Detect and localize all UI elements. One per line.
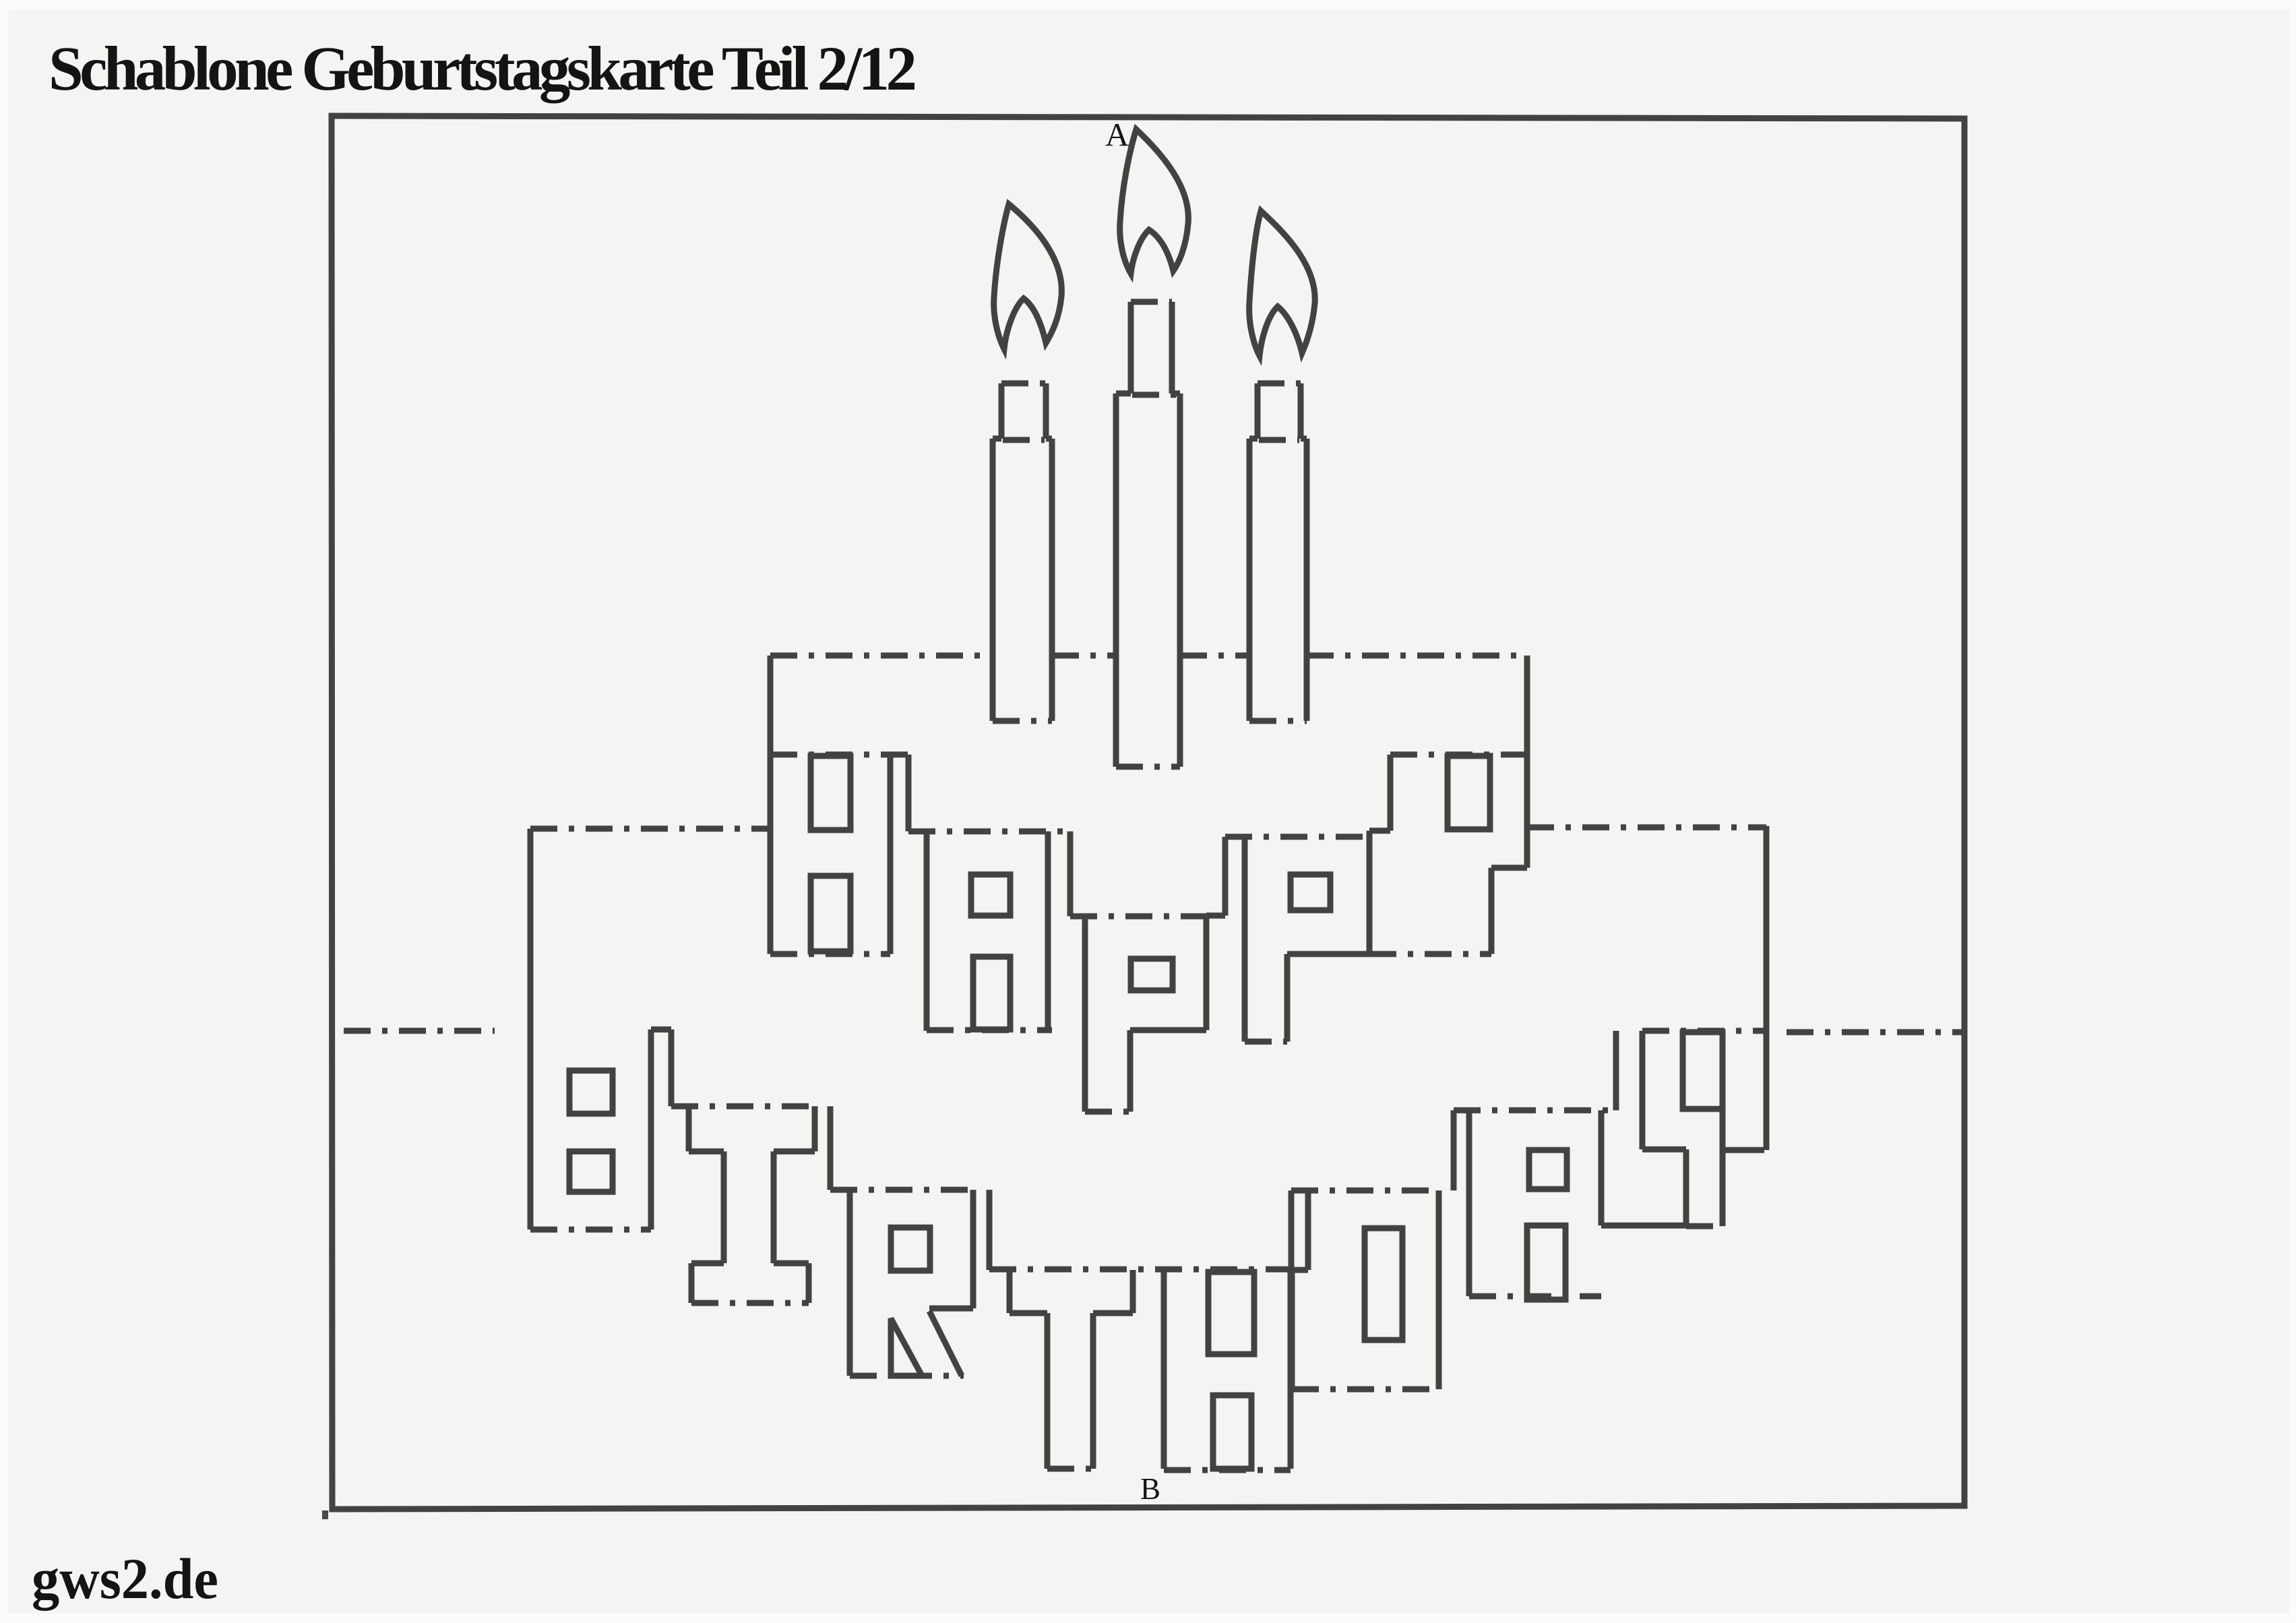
- svg-text:B: B: [1140, 1472, 1160, 1506]
- svg-text:gws2.de: gws2.de: [32, 1546, 218, 1611]
- svg-text:A: A: [1105, 116, 1129, 153]
- svg-text:Schablone Geburtstagskarte Tei: Schablone Geburtstagskarte Teil 2/12: [49, 34, 917, 104]
